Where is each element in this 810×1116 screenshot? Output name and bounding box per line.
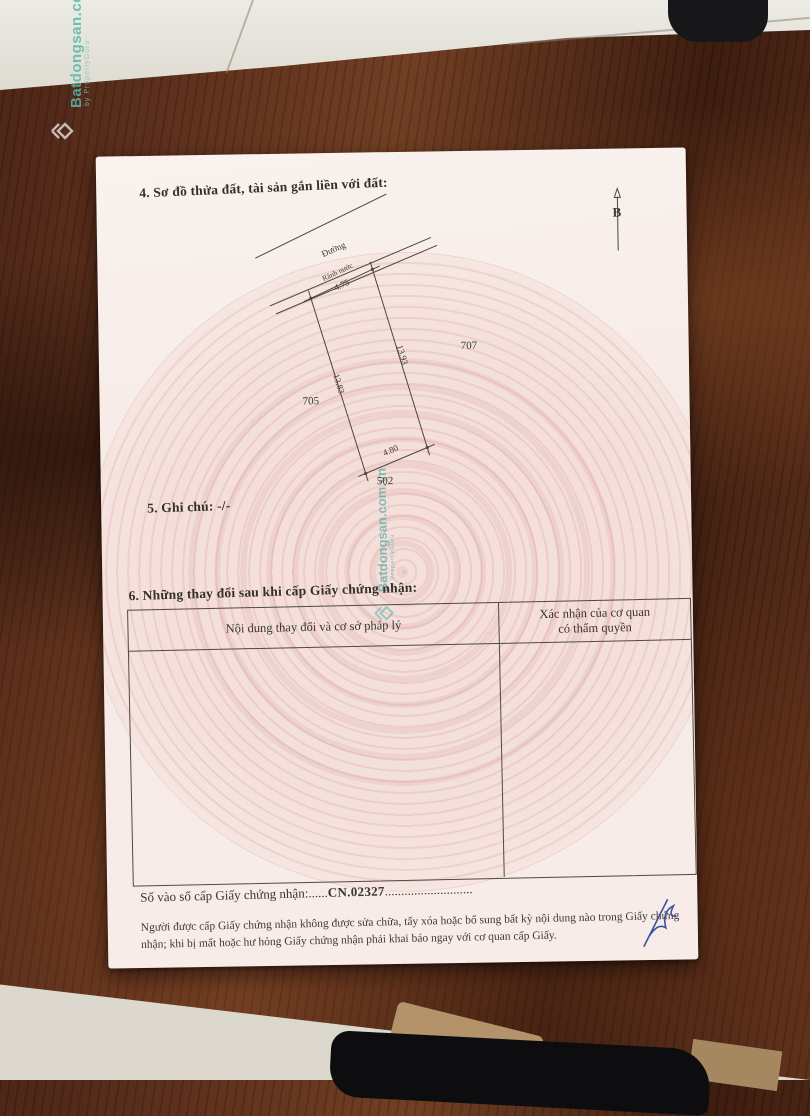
- plot-diagram: Đường Rãnh nước 4.75 13.83 13.93 4.80 70…: [96, 183, 691, 522]
- footer-note: Người được cấp Giấy chứng nhận không đượ…: [141, 907, 699, 953]
- section5-note: 5. Ghi chú: -/-: [147, 498, 231, 517]
- land-certificate-page: Batdongsan.com.vn by PropertyGuru 4. Sơ …: [96, 147, 699, 968]
- road-label: Đường: [320, 239, 347, 259]
- registry-dots: ......: [308, 885, 328, 901]
- neighbor-plot-right: 707: [461, 340, 478, 352]
- col-header-authority-confirm: Xác nhận của cơ quan có thẩm quyền: [499, 599, 691, 643]
- north-label: B: [612, 204, 621, 219]
- photo-watermark: Batdongsan.com.vn by PropertyGuru: [18, 8, 108, 238]
- registry-label: Số vào sổ cấp Giấy chứng nhận:: [140, 885, 308, 904]
- dim-right: 13.93: [395, 344, 411, 367]
- north-arrow-icon: B: [612, 188, 622, 250]
- road-bottom-edge: [269, 237, 432, 306]
- plot-corner-mark: [364, 472, 367, 475]
- col-header-content-change: Nội dung thay đổi và cơ sở pháp lý: [128, 603, 500, 651]
- dim-top: 4.75: [332, 277, 351, 293]
- watermark-brand-text: Batdongsan.com.vn: [68, 0, 85, 108]
- watermark-sub-text: by PropertyGuru: [84, 40, 91, 106]
- gutter-edge: [275, 245, 438, 314]
- plot-corner-mark: [426, 446, 429, 449]
- dim-bottom: 4.80: [381, 442, 400, 458]
- table-cell-empty: [500, 640, 696, 877]
- dim-left: 13.83: [331, 373, 347, 396]
- dark-object-top-right: [668, 0, 768, 42]
- dark-object-under-table: [329, 1030, 712, 1116]
- neighbor-plot-left: 705: [302, 395, 319, 407]
- registry-dots: ...........................: [385, 881, 473, 898]
- signature-mark: [637, 892, 684, 951]
- batdongsan-logo-icon: [48, 116, 78, 146]
- changes-table-body: [129, 640, 696, 885]
- registry-number: CN.02327: [328, 883, 385, 899]
- table-cell-empty: [129, 644, 505, 885]
- plot-corner-mark: [371, 268, 374, 271]
- changes-table: Nội dung thay đổi và cơ sở pháp lý Xác n…: [127, 598, 697, 887]
- neighbor-plot-bottom: 502: [377, 475, 394, 487]
